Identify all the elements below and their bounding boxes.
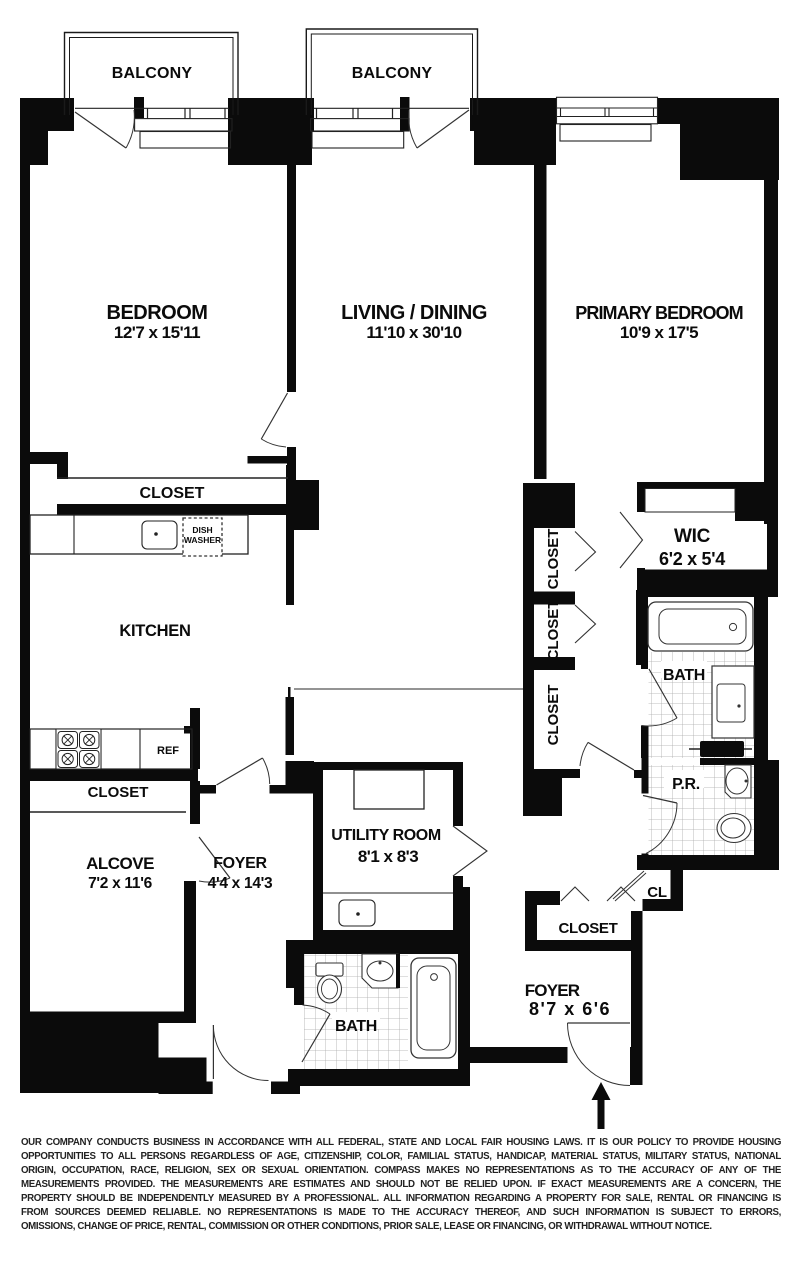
svg-text:8'7 x 6'6: 8'7 x 6'6 (529, 999, 611, 1019)
svg-text:CLOSET: CLOSET (140, 485, 205, 502)
svg-text:DISH: DISH (192, 525, 212, 535)
svg-text:10'9 x 17'5: 10'9 x 17'5 (620, 323, 698, 342)
svg-text:FOYER: FOYER (213, 855, 267, 872)
svg-text:BEDROOM: BEDROOM (107, 302, 208, 324)
svg-text:LIVING / DINING: LIVING / DINING (341, 302, 487, 324)
svg-text:11'10 x 30'10: 11'10 x 30'10 (366, 323, 461, 342)
svg-text:CL: CL (647, 884, 667, 901)
svg-text:CLOSET: CLOSET (545, 529, 562, 590)
svg-text:REF: REF (157, 745, 179, 757)
svg-text:BATH: BATH (663, 667, 705, 684)
svg-text:UTILITY ROOM: UTILITY ROOM (331, 827, 441, 844)
svg-text:CLOSET: CLOSET (545, 685, 562, 746)
svg-text:CLOSET: CLOSET (558, 920, 617, 937)
svg-text:BALCONY: BALCONY (352, 65, 433, 82)
svg-text:FOYER: FOYER (525, 981, 580, 1000)
svg-text:12'7 x 15'11: 12'7 x 15'11 (114, 323, 200, 342)
svg-text:BALCONY: BALCONY (112, 65, 193, 82)
svg-text:ALCOVE: ALCOVE (86, 854, 154, 873)
svg-text:CLOSET: CLOSET (88, 784, 149, 801)
svg-text:WASHER: WASHER (184, 535, 221, 545)
svg-text:8'1 x 8'3: 8'1 x 8'3 (358, 847, 418, 866)
svg-text:4'4 x 14'3: 4'4 x 14'3 (208, 875, 273, 892)
svg-text:P.R.: P.R. (672, 776, 700, 793)
svg-text:7'2 x 11'6: 7'2 x 11'6 (88, 875, 153, 892)
svg-text:WIC: WIC (674, 526, 711, 547)
svg-text:PRIMARY BEDROOM: PRIMARY BEDROOM (575, 303, 743, 323)
svg-text:BATH: BATH (335, 1018, 377, 1035)
svg-text:KITCHEN: KITCHEN (119, 622, 190, 640)
svg-text:CLOSET: CLOSET (545, 600, 562, 661)
svg-text:6'2 x 5'4: 6'2 x 5'4 (659, 549, 725, 569)
